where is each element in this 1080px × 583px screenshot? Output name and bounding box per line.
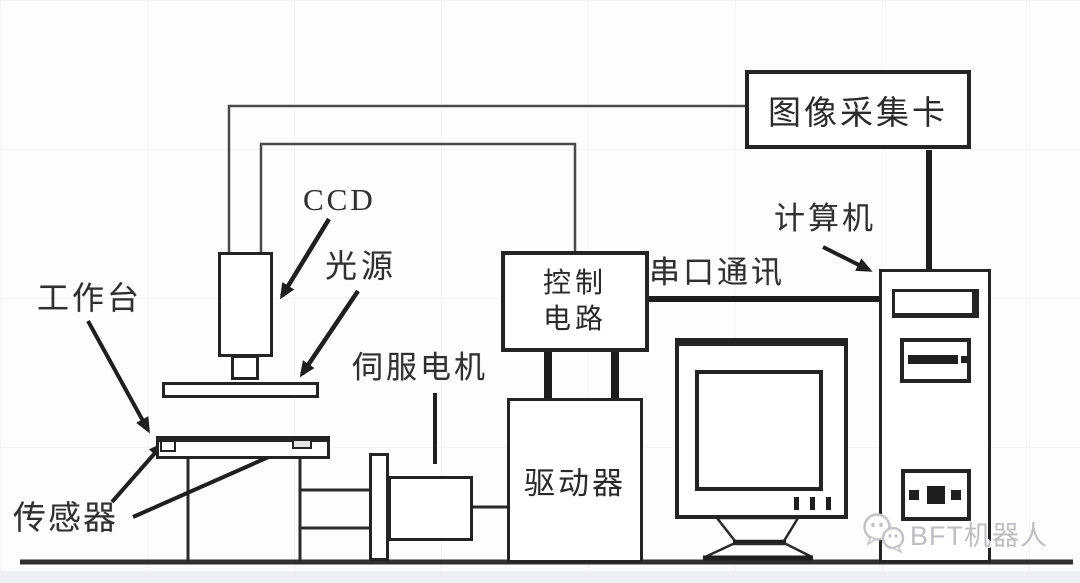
image-capture-card-label: 图像采集卡	[768, 86, 948, 134]
serial-comm-label: 串口通讯	[649, 256, 785, 290]
wechat-bubbles-icon	[862, 510, 906, 556]
monitor-stand-base	[705, 544, 812, 557]
sensor-label: 传感器	[13, 501, 118, 537]
tower-power-button	[927, 486, 945, 504]
driver-box: 驱动器	[507, 398, 643, 563]
ccd-label: CCD	[303, 183, 376, 217]
sensor-block-right	[292, 439, 312, 449]
tower-button-small-1	[909, 490, 919, 500]
watermark-text: BFT机器人	[910, 514, 1048, 553]
monitor-screen	[695, 370, 823, 491]
cd-drive-slot	[908, 355, 958, 364]
monitor-button-3	[826, 497, 831, 510]
tower-drive-bay	[892, 289, 979, 318]
sensor-block-left	[160, 440, 176, 452]
watermark: BFT机器人	[862, 510, 1048, 556]
ccd-camera-body	[218, 252, 273, 357]
light-source-label: 光源	[325, 249, 397, 284]
bottom-edge-strip	[0, 571, 1080, 583]
monitor-button-2	[810, 497, 815, 510]
ccd-camera-lens	[231, 355, 259, 380]
light-source-arrow	[302, 291, 358, 374]
ccd-arrow	[282, 219, 329, 296]
control-circuit-box: 控制 电路	[501, 251, 649, 352]
computer-label: 计算机	[774, 202, 876, 236]
image-capture-card-box: 图像采集卡	[745, 70, 971, 149]
servo-motor-body	[388, 476, 473, 541]
light-source-plate	[162, 382, 319, 398]
driver-label: 驱动器	[524, 458, 626, 503]
control-circuit-label-line1: 控制	[543, 266, 607, 302]
machine-vision-system-diagram: 图像采集卡 控制 电路 驱动器 CCD 光源 工作台 传感器 伺服电机 串口通讯…	[0, 0, 1080, 583]
worktable-arrow	[88, 321, 148, 430]
worktable-label: 工作台	[37, 281, 142, 316]
cd-drive-eject-dot	[961, 356, 967, 363]
ccd-to-capture-card-wire	[229, 106, 747, 254]
sensor-arrow-left	[112, 445, 162, 502]
tower-button-small-2	[951, 490, 961, 500]
control-circuit-label-line2: 电路	[543, 302, 607, 338]
servo-motor-label: 伺服电机	[352, 351, 488, 385]
monitor-stand-neck	[717, 518, 798, 541]
motor-flange	[369, 453, 389, 561]
computer-arrow	[823, 247, 869, 270]
monitor-button-1	[794, 497, 799, 510]
